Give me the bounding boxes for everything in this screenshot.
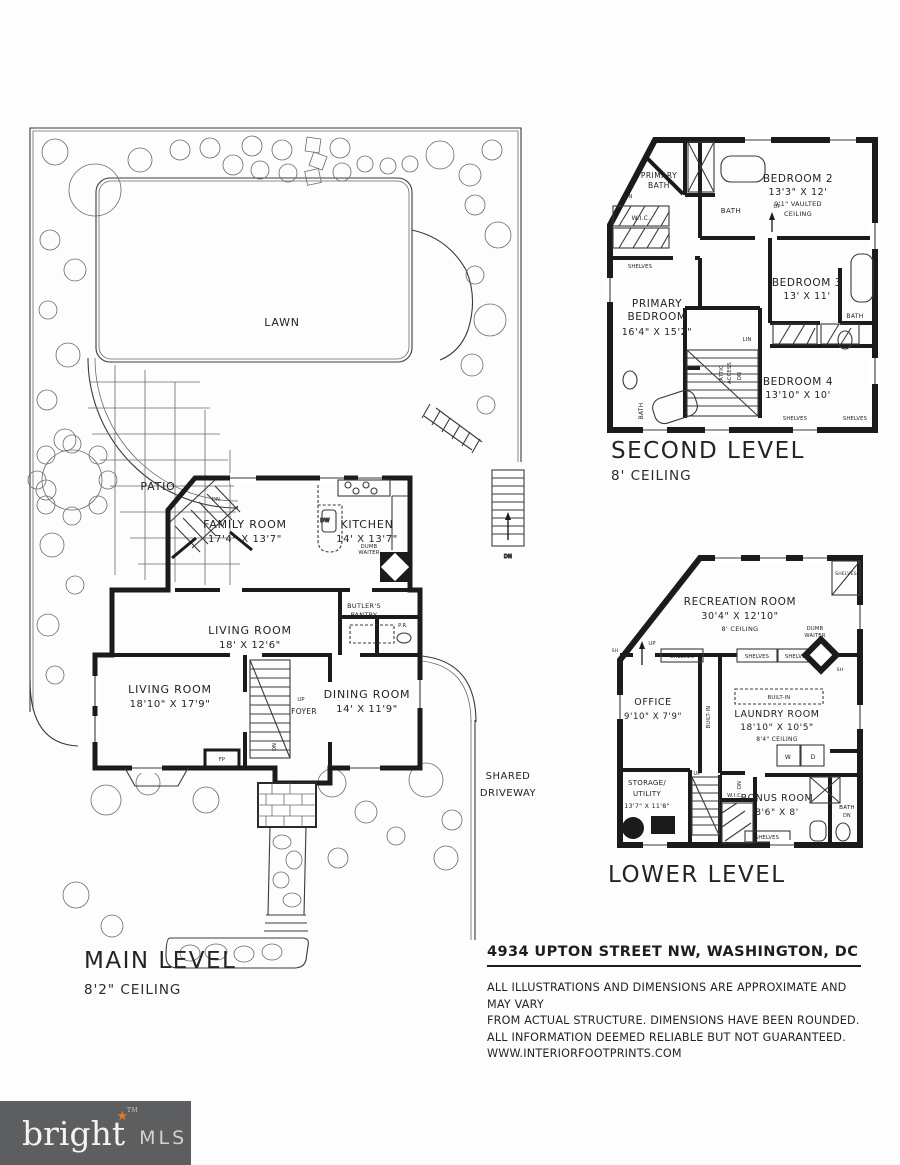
butlers-pantry: BUTLER'S PANTRY P.R. [347,602,411,643]
rear-stairs: DN [422,404,524,560]
dining-room-dims: 14' X 11'9" [336,704,398,715]
disclaimer-line-3: ALL INFORMATION DEEMED RELIABLE BUT NOT … [487,1030,861,1047]
wic2-label: W.I.C. [727,793,743,799]
sh-right: SH [837,667,844,673]
bedroom2-label: BEDROOM 2 [763,173,833,185]
family-room-label: FAMILY ROOM [203,518,287,531]
lawn-label: LAWN [264,316,300,329]
lower-dn1: DN [737,781,743,789]
washer-label: W [785,754,791,761]
builtin-dash: BUILT-IN [768,695,791,701]
laundry-note: 8'4" CEILING [756,736,798,743]
fireplace-label: FP [219,757,226,763]
bedroom4-label: BEDROOM 4 [763,376,833,388]
lower-level-plan: RECREATION ROOM 30'4" X 12'10" 8' CEILIN… [585,545,885,853]
trademark-symbol: TM [127,1108,138,1114]
laundry-dims: 18'10" X 10'5" [740,723,814,733]
kitchen-label: KITCHEN [340,518,393,531]
attic-label1: ATTIC [719,365,725,381]
bedroom3-label: BEDROOM 3 [772,277,842,289]
main-level-caption: MAIN LEVEL [84,948,236,974]
bedroom2-dims: 13'3" X 12' [769,187,828,198]
primary-bath-label1: PRIMARY [641,171,677,180]
front-walkway [166,783,316,968]
linen-label: LIN [624,194,633,200]
storage-label2: UTILITY [633,790,662,798]
living-room-dims: 18'10" X 17'9" [130,699,211,710]
patio-area: PATIO [28,358,240,585]
disclaimer-line-4: WWW.INTERIORFOOTPRINTS.COM [487,1046,861,1063]
butlers-label: BUTLER'S [347,602,381,610]
attic-label2: ACCESS [727,362,733,384]
lower-dn2: DN [843,813,851,819]
lawn-area: LAWN [96,178,473,362]
lower-level-caption: LOWER LEVEL [608,862,786,888]
dumb-waiter-label2: WAITER [358,550,379,556]
disclaimer: ALL ILLUSTRATIONS AND DIMENSIONS ARE APP… [487,980,861,1063]
primary-bed-dims: 16'4" X 15'2" [622,327,693,338]
second-labels: PRIMARY BATH LIN W.I.C. BATH BEDROOM 2 1… [622,171,867,422]
floorplan-sheet: LAWN PATIO [0,0,900,1165]
driveway: SHARED DRIVEWAY [422,656,537,799]
wic-label: W.I.C. [632,215,651,222]
primary-bath2-label: BATH [638,403,645,420]
second-level-caption: SECOND LEVEL [611,438,805,464]
shelves-b4b: SHELVES [843,416,867,422]
recreation-label: RECREATION ROOM [684,596,796,608]
dining-room-label: DINING ROOM [324,688,411,701]
driveway-label2: DRIVEWAY [480,788,537,799]
disclaimer-line-1: ALL ILLUSTRATIONS AND DIMENSIONS ARE APP… [487,980,861,1013]
primary-shelves-label: SHELVES [628,264,652,270]
storage-dims: 13'7" X 11'8" [624,803,670,810]
disclaimer-line-2: FROM ACTUAL STRUCTURE. DIMENSIONS HAVE B… [487,1013,861,1030]
second-level-ceiling: 8' CEILING [611,468,692,484]
lower-up2: UP [693,771,700,777]
hall-bath-label: BATH [721,207,742,215]
sh-left: SH [612,648,619,654]
bedroom4-dims: 13'10" X 10' [765,390,831,401]
bonus-dims: 8'6" X 8' [755,808,799,818]
storage-label1: STORAGE/ [628,779,666,787]
second-up-label: UP [773,204,780,210]
stairs-up-label: UP [297,697,304,703]
dumb2-label2: WAITER [804,633,825,639]
primary-bed-label1: PRIMARY [632,298,682,310]
driveway-label1: SHARED [486,771,531,782]
shelves-l3: SHELVES [785,654,809,660]
bedroom2-note2: CEILING [784,210,812,218]
living-room-upper-dims: 18' X 12'6" [219,640,281,651]
living-room-upper-label: LIVING ROOM [208,624,292,637]
bonus-label: BONUS ROOM [741,793,814,804]
pantry-label: PANTRY [351,611,378,619]
brand-wordmark: bright ★ TM [22,1117,125,1150]
rear-stairs-dn: DN [504,554,512,560]
bedroom3-dims: 13' X 11' [783,291,830,302]
second-level-plan: PRIMARY BATH LIN W.I.C. BATH BEDROOM 2 1… [555,128,885,443]
shelves-b4a: SHELVES [783,416,807,422]
shelves-l2: SHELVES [745,654,769,660]
linen2-label: LIN [743,337,752,343]
footer: 4934 UPTON STREET NW, WASHINGTON, DC ALL… [487,944,861,1063]
recreation-note: 8' CEILING [722,625,759,633]
recreation-dims: 30'4" X 12'10" [701,611,778,622]
brand-mls-text: MLS [139,1127,187,1149]
brightmls-logo: bright ★ TM MLS [0,1101,191,1165]
patio-label: PATIO [140,480,175,493]
foyer-label: FOYER [291,707,317,716]
stairs-dn-label: DN [272,743,278,751]
shelves-corner: SHELVES [835,571,857,577]
shelves-bonus: SHELVES [755,835,779,841]
shelves-l1: SHELVES [670,654,694,660]
brand-text: bright [22,1114,125,1153]
dishwasher-label: DW [320,518,330,524]
bath-lower: BATH [839,805,855,811]
office-dims: 9'10" X 7'9" [624,712,682,722]
family-room-dims: 17'4" X 13'7" [208,534,282,545]
dumb-waiter-main: DUMB WAITER [358,544,410,582]
primary-bed-label2: BEDROOM [627,311,686,323]
powder-room-label: P.R. [398,623,408,629]
patio-steps-dn: DN [212,497,220,503]
lower-up1: UP [648,641,655,647]
living-room-label: LIVING ROOM [128,683,212,696]
main-level-plan: LAWN PATIO [20,120,550,970]
laundry-label: LAUNDRY ROOM [734,709,819,720]
bath3-label: BATH [846,313,863,320]
builtin-vert: BUILT-IN [706,706,712,729]
primary-bath-label2: BATH [648,181,670,190]
bedroom2-note1: 9'1" VAULTED [774,200,822,208]
office-label: OFFICE [634,697,671,708]
kitchen-dims: 14' X 13'7" [336,534,398,545]
address-line: 4934 UPTON STREET NW, WASHINGTON, DC [487,944,861,967]
main-level-ceiling: 8'2" CEILING [84,982,181,998]
second-dn-label: DN [737,372,743,380]
dumb2-label1: DUMB [807,626,824,632]
dryer-label: D [811,754,816,761]
